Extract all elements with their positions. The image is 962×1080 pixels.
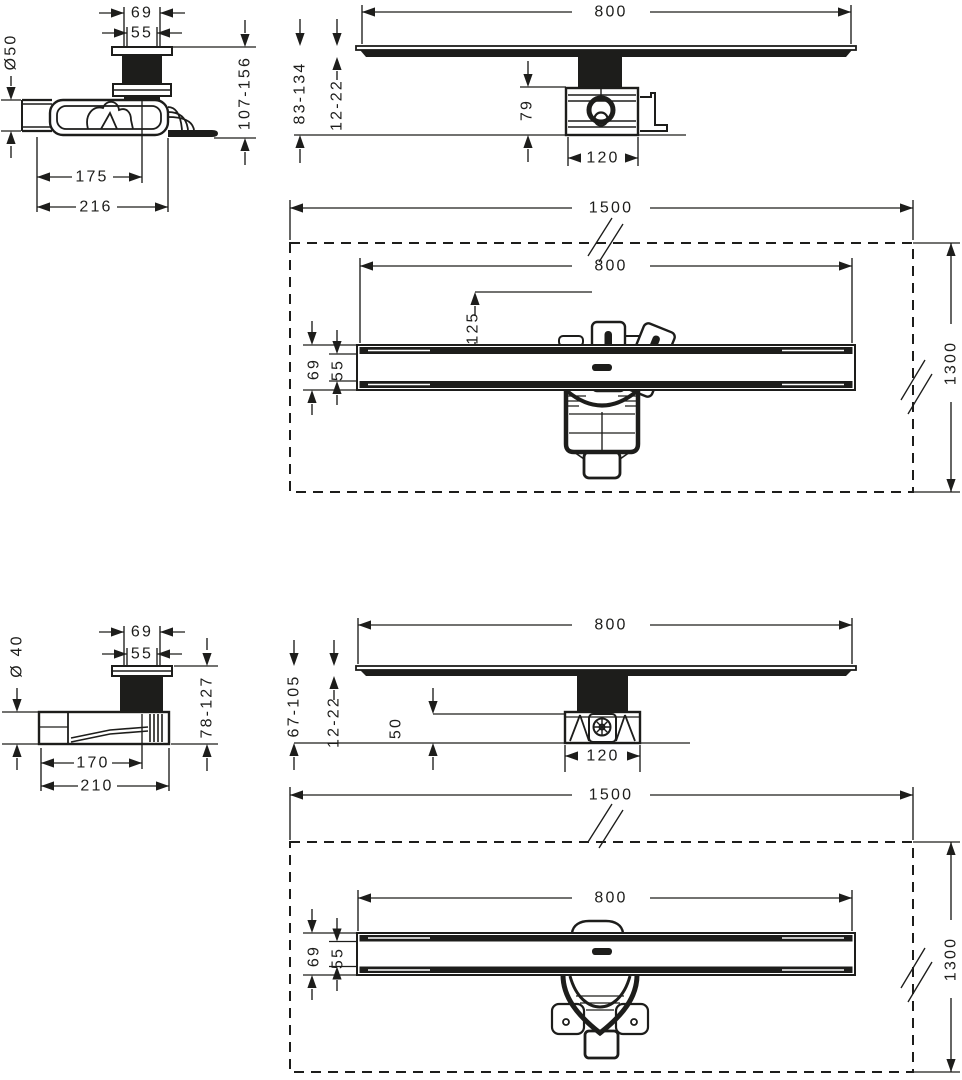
dim-install-height: 107-156: [164, 20, 256, 165]
channel-plan: [357, 345, 855, 390]
outlet-socket: [584, 452, 620, 478]
dim-label-83-134: 83-134: [292, 61, 309, 124]
dim-label-1300: 1300: [943, 341, 960, 385]
dim-inner-width: 55: [102, 25, 182, 48]
dim-trap-width: 120: [568, 137, 638, 167]
dim-label-216: 216: [79, 199, 112, 216]
break-marks-top: [588, 218, 623, 262]
channel-front-profile: [356, 46, 856, 88]
channel-plan: [357, 921, 855, 975]
trap-plan: [552, 975, 648, 1058]
plan-view-variant1: 1500 1300 800 125: [290, 200, 960, 493]
dim-label-210: 210: [80, 778, 113, 795]
dim-grate-width: 55: [329, 918, 357, 991]
dim-install-height: 83-134: [292, 19, 309, 163]
side-view-variant1: 69 55 Ø50: [1, 5, 256, 216]
dim-label-12-22: 12-22: [326, 696, 343, 748]
dim-label-69: 69: [131, 5, 153, 22]
dim-label-120: 120: [586, 748, 619, 765]
dim-label-800: 800: [594, 258, 627, 275]
dim-label-170: 170: [76, 755, 109, 772]
dim-tile-adjust: 12-22: [329, 19, 346, 131]
front-view-variant2: 800 67-105 12-22: [286, 617, 857, 773]
dim-install-height: 67-105: [286, 640, 303, 770]
dim-label-175: 175: [75, 169, 108, 186]
break-marks-right: [901, 948, 932, 1002]
dim-label-69: 69: [131, 624, 153, 641]
dim-outlet-diameter: Ø50: [1, 34, 21, 158]
plan-view-variant2: 1500 1300 800: [290, 787, 960, 1073]
dim-label-67-105: 67-105: [286, 674, 303, 737]
dim-label-50: 50: [388, 717, 405, 739]
dim-label-dia50: Ø50: [3, 34, 20, 71]
break-marks-right: [901, 360, 932, 414]
mounting-bracket: [640, 93, 667, 131]
drain-trap-side-profile: [22, 47, 218, 137]
dim-trap-depth: 79: [519, 61, 567, 162]
drain-trap-side-profile: [39, 666, 172, 744]
dim-label-78-127: 78-127: [199, 675, 216, 738]
dim-label-125: 125: [465, 311, 482, 344]
technical-drawing-canvas: 69 55 Ø50: [0, 0, 962, 1080]
dim-label-55: 55: [330, 947, 347, 969]
trap-dome: [572, 921, 623, 933]
dim-tile-adjust: 12-22: [326, 640, 343, 748]
strainer-housing: [294, 712, 690, 743]
dim-trap-depth: 50: [388, 688, 566, 770]
dim-label-dia40: Ø 40: [9, 634, 26, 678]
dim-outlet-diameter: Ø 40: [2, 634, 39, 770]
dim-label-1300: 1300: [943, 937, 960, 981]
dim-label-1500: 1500: [589, 787, 633, 804]
trap-plan: [566, 390, 638, 478]
dim-label-107-156: 107-156: [237, 56, 254, 130]
dim-area-width: 1500: [290, 787, 913, 841]
dim-install-height: 78-127: [171, 638, 218, 771]
drain-shaft: [577, 676, 628, 712]
dim-label-800: 800: [594, 890, 627, 907]
dimension-drawing: 69 55 Ø50: [0, 0, 962, 1080]
trap-front-profile: [294, 88, 686, 135]
dim-label-12-22: 12-22: [329, 79, 346, 131]
grate-slot: [592, 364, 612, 371]
dim-label-800: 800: [594, 617, 627, 634]
dim-label-1500: 1500: [589, 200, 633, 217]
dim-trap-width: 120: [565, 745, 640, 772]
dim-grate-width: 55: [329, 330, 357, 405]
dim-label-55: 55: [131, 25, 153, 42]
dim-label-55: 55: [330, 359, 347, 381]
outlet-socket: [585, 1031, 618, 1058]
front-view-variant1: 800 83-134 12-22: [292, 4, 857, 167]
dim-label-69: 69: [306, 358, 323, 380]
dim-label-79: 79: [519, 99, 536, 121]
dim-label-55: 55: [131, 646, 153, 663]
dim-label-120: 120: [586, 150, 619, 167]
dim-channel-length: 800: [362, 4, 851, 45]
grate-slot: [592, 948, 612, 955]
side-view-variant2: 69 55 Ø 40 78-127: [2, 624, 218, 795]
drain-shaft: [578, 57, 622, 88]
dim-label-69: 69: [306, 945, 323, 967]
dim-inner-width: 55: [102, 646, 182, 667]
dim-label-800: 800: [594, 4, 627, 21]
dim-channel-length: 800: [358, 617, 852, 665]
